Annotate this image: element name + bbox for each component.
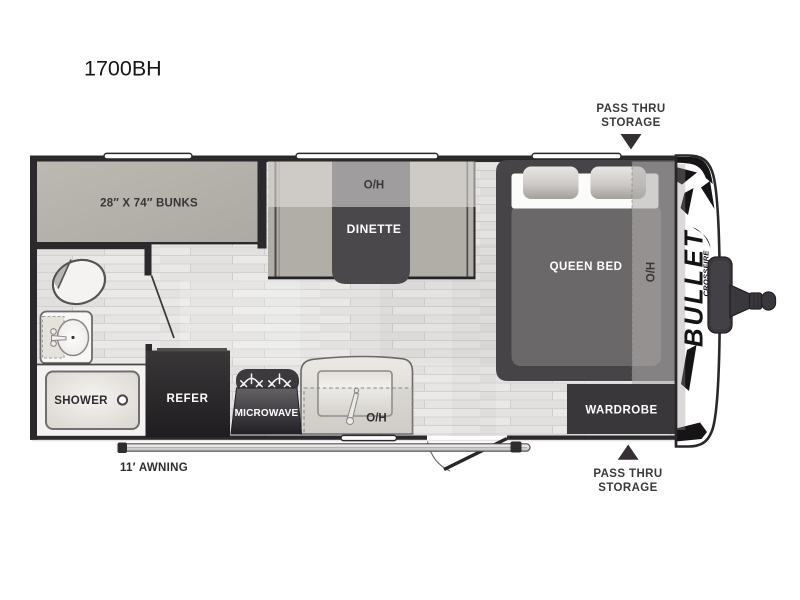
svg-text:MICROWAVE: MICROWAVE bbox=[235, 408, 299, 419]
svg-text:PASS THRU: PASS THRU bbox=[593, 468, 662, 480]
svg-text:1700BH: 1700BH bbox=[84, 57, 162, 81]
svg-text:WARDROBE: WARDROBE bbox=[585, 405, 657, 417]
svg-text:PASS THRU: PASS THRU bbox=[596, 103, 665, 115]
svg-text:O/H: O/H bbox=[364, 180, 384, 192]
svg-text:O/H: O/H bbox=[366, 413, 386, 425]
svg-text:QUEEN BED: QUEEN BED bbox=[550, 261, 623, 273]
svg-text:STORAGE: STORAGE bbox=[598, 482, 657, 494]
svg-text:STORAGE: STORAGE bbox=[601, 117, 660, 129]
svg-text:DINETTE: DINETTE bbox=[347, 222, 402, 236]
svg-text:SHOWER: SHOWER bbox=[54, 395, 108, 407]
svg-text:11′ AWNING: 11′ AWNING bbox=[120, 462, 188, 474]
svg-text:REFER: REFER bbox=[167, 393, 209, 405]
svg-text:O/H: O/H bbox=[646, 262, 658, 282]
svg-text:28″ X 74″ BUNKS: 28″ X 74″ BUNKS bbox=[100, 198, 198, 210]
